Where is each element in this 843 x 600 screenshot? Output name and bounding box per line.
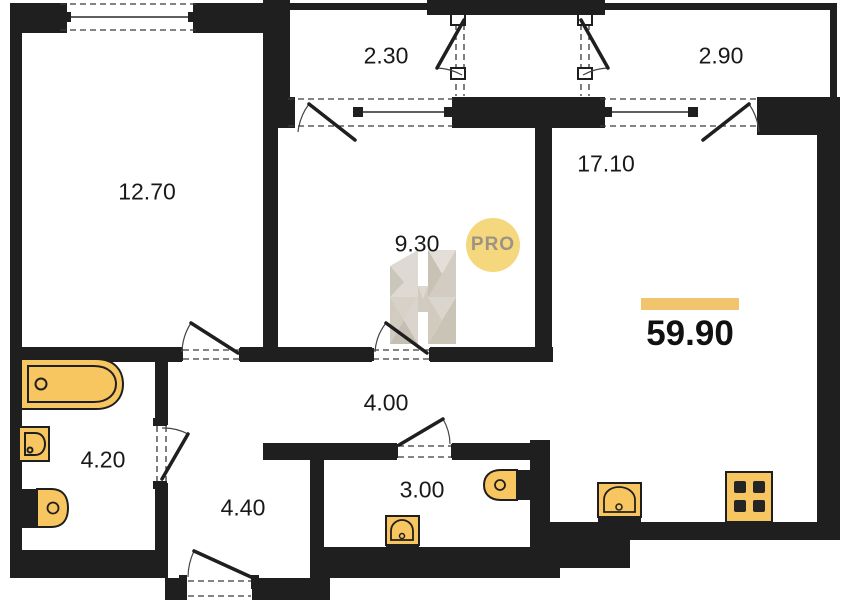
total-area-accent-bar (641, 298, 739, 310)
kitchen-sink (598, 483, 641, 523)
bathtub (21, 359, 123, 409)
pro-badge-watermark: PRO (466, 218, 520, 272)
room-area-label: 4.20 (81, 447, 126, 474)
floor-plan: H (0, 0, 843, 600)
room-area-label: 9.30 (395, 231, 440, 258)
room-area-label: 3.00 (400, 477, 445, 504)
builder-logo-watermark: H (390, 250, 456, 344)
room-area-label: 2.90 (699, 43, 744, 70)
stove (726, 472, 772, 522)
room-area-label: 12.70 (118, 179, 176, 206)
bathroom-toilet (20, 489, 68, 528)
total-area: 59.90 (640, 298, 740, 351)
total-area-value: 59.90 (640, 316, 740, 351)
room-area-label: 4.00 (364, 390, 409, 417)
room-area-label: 17.10 (577, 151, 635, 178)
wc-sink (386, 516, 419, 549)
room-area-label: 2.30 (364, 43, 409, 70)
balcony-door-caps (451, 14, 592, 79)
bathroom-sink (19, 427, 49, 461)
wc-toilet (484, 470, 533, 500)
room-area-label: 4.40 (221, 495, 266, 522)
